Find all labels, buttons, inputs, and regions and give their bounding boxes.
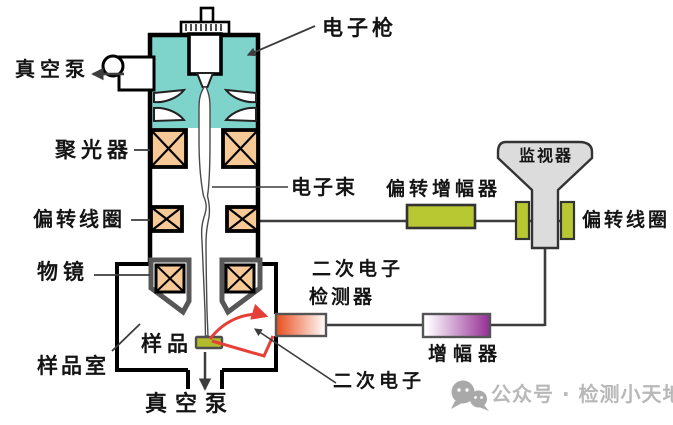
- se-trajectory-upper: [210, 314, 266, 339]
- electron-beam-shape: [199, 87, 210, 336]
- label-monitor: 监视器: [519, 148, 573, 165]
- label-sample-chamber: 样品室: [37, 355, 109, 377]
- label-secondary-electron: 二次电子: [333, 372, 425, 392]
- label-objective-lens: 物镜: [37, 261, 89, 283]
- label-deflection-amplifier: 偏转增幅器: [386, 180, 501, 200]
- wechat-icon: [451, 381, 489, 412]
- label-se-detector-line2: 检测器: [309, 288, 375, 308]
- crt-coil-left: [516, 202, 529, 239]
- electron-gun-body: [189, 34, 221, 74]
- label-amplifier: 增幅器: [428, 345, 503, 365]
- label-deflection-coil-column: 偏转线圈: [33, 209, 125, 230]
- deflection-amplifier-box: [407, 205, 475, 228]
- label-se-detector-line1: 二次电子: [312, 260, 404, 280]
- sem-diagram: 电子枪 真空泵 聚光器 电子束 偏转线圈 物镜 样品 样品室 真空泵 偏转增幅器…: [0, 0, 673, 425]
- label-vacuum-pump-bottom: 真空泵: [145, 393, 235, 416]
- amplifier-box: [423, 314, 490, 337]
- label-sample: 样品: [141, 333, 193, 355]
- watermark-text: 公众号 · 检测小天地: [491, 384, 673, 405]
- label-vacuum-pump-top: 真空泵: [15, 59, 90, 80]
- vacuum-port: [119, 57, 154, 90]
- crt-coil-right: [561, 202, 574, 239]
- secondary-electron-detector-box: [276, 314, 326, 336]
- label-electron-gun: 电子枪: [322, 17, 397, 39]
- label-condenser: 聚光器: [55, 139, 133, 161]
- label-electron-beam: 电子束: [291, 177, 357, 198]
- label-deflection-coil-crt: 偏转线圈: [582, 211, 670, 231]
